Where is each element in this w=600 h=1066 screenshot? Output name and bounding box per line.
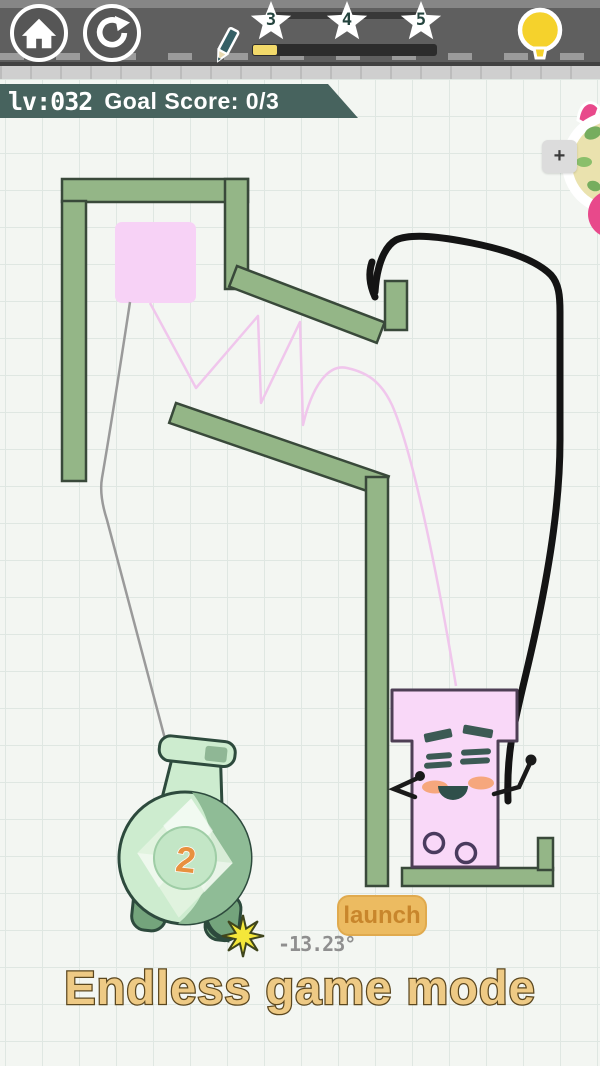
bomb-character: 2 (111, 732, 264, 957)
home-icon (20, 14, 58, 52)
ink-meter (205, 22, 249, 66)
angle-readout: -13.23° (278, 932, 355, 956)
hint-button[interactable] (510, 4, 570, 64)
level-banner: lv:032 Goal Score: 0/3 (0, 84, 360, 118)
home-button[interactable] (10, 4, 68, 62)
star-label: 3 (266, 10, 276, 30)
restart-button[interactable] (83, 4, 141, 62)
trajectory-line (150, 303, 456, 686)
game-mode-title: Endless game mode (0, 960, 600, 1015)
restart-icon (93, 14, 131, 52)
top-toolbar: 3 4 5 (0, 0, 600, 66)
drawing-playfield[interactable]: 2 (0, 0, 600, 1066)
bomb-count-label: 2 (174, 838, 198, 881)
star-label: 5 (416, 10, 426, 30)
pink-ink-square (115, 222, 196, 303)
game-screen: 2 (0, 0, 600, 1066)
pencil-icon (205, 22, 249, 66)
ink-progress-fill (253, 45, 277, 55)
toolbar-under-stripe (0, 66, 600, 79)
launch-button[interactable]: launch (337, 895, 427, 936)
goal-score-label: Goal Score: 0/3 (104, 88, 279, 115)
spark-star-icon (222, 915, 264, 957)
level-label: lv:032 (8, 87, 92, 116)
star-label: 4 (342, 10, 352, 30)
rope-line (101, 302, 178, 788)
pink-character (392, 690, 537, 867)
ink-progress-bar (252, 44, 437, 56)
add-button[interactable]: + (542, 140, 577, 173)
lightbulb-icon (510, 4, 570, 64)
